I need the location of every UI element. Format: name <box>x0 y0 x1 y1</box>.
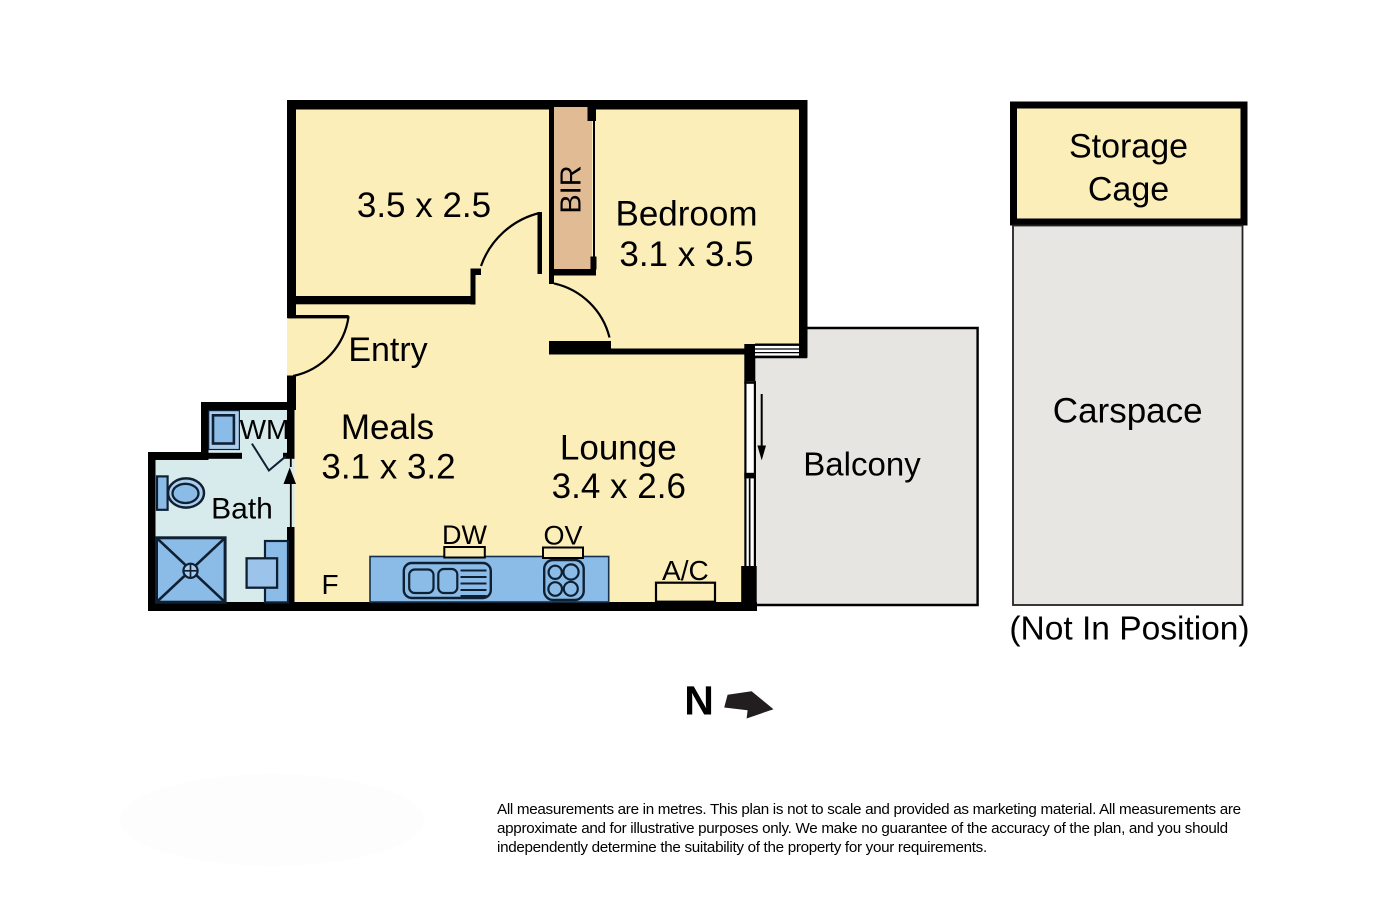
svg-text:independently determine the su: independently determine the suitability … <box>497 839 987 856</box>
svg-text:OV: OV <box>543 521 582 551</box>
svg-text:WM: WM <box>240 414 290 445</box>
svg-text:All measurements are in metres: All measurements are in metres. This pla… <box>497 801 1241 818</box>
svg-text:Carspace: Carspace <box>1053 391 1203 430</box>
svg-text:3.1 x 3.5: 3.1 x 3.5 <box>619 235 753 274</box>
svg-text:A/C: A/C <box>662 555 709 586</box>
svg-text:Balcony: Balcony <box>803 446 921 483</box>
svg-text:Bath: Bath <box>211 493 273 526</box>
svg-text:F: F <box>321 569 338 600</box>
svg-text:Bedroom: Bedroom <box>615 195 757 234</box>
svg-text:Lounge: Lounge <box>560 429 677 468</box>
svg-text:BIR: BIR <box>556 165 588 213</box>
svg-text:Entry: Entry <box>348 331 427 369</box>
svg-text:DW: DW <box>442 520 487 550</box>
svg-text:Storage: Storage <box>1069 128 1188 166</box>
svg-text:(Not In Position): (Not In Position) <box>1009 611 1249 648</box>
svg-text:Meals: Meals <box>341 408 434 447</box>
svg-text:3.1 x 3.2: 3.1 x 3.2 <box>321 448 455 487</box>
svg-text:approximate and for illustrati: approximate and for illustrative purpose… <box>497 820 1228 837</box>
svg-text:Cage: Cage <box>1088 171 1169 209</box>
svg-text:3.4 x 2.6: 3.4 x 2.6 <box>552 467 686 506</box>
svg-text:3.5 x 2.5: 3.5 x 2.5 <box>357 186 491 225</box>
svg-text:N: N <box>684 678 714 724</box>
